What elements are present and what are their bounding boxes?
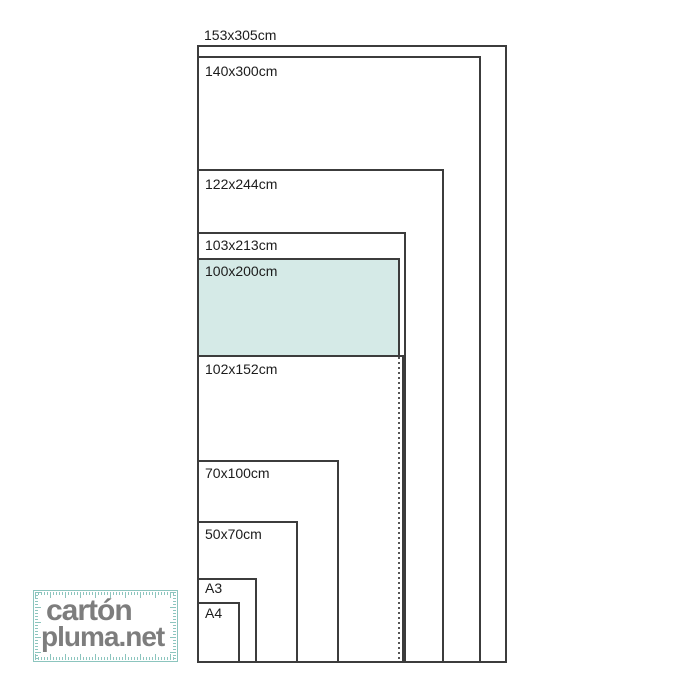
logo-wordmark-line2: pluma.net [41, 623, 164, 651]
size-label-102x152: 102x152cm [205, 362, 277, 376]
size-label-70x100: 70x100cm [205, 466, 270, 480]
logo-cartonpluma: cartón pluma.net [33, 590, 178, 662]
size-label-153x305: 153x305cm [204, 28, 276, 42]
ruler-ticks-bottom-icon [35, 654, 176, 660]
size-label-122x244: 122x244cm [205, 177, 277, 191]
size-comparison-diagram: 153x305cm 140x300cm 122x244cm 103x213cm … [0, 0, 690, 690]
size-label-a3: A3 [205, 581, 222, 595]
size-label-a4: A4 [205, 606, 222, 620]
ruler-ticks-right-icon [170, 592, 176, 660]
size-label-103x213: 103x213cm [205, 238, 277, 252]
hidden-edge-dotted-line [398, 357, 400, 661]
size-label-50x70: 50x70cm [205, 527, 262, 541]
size-label-100x200: 100x200cm [205, 264, 277, 278]
size-label-140x300: 140x300cm [205, 64, 277, 78]
